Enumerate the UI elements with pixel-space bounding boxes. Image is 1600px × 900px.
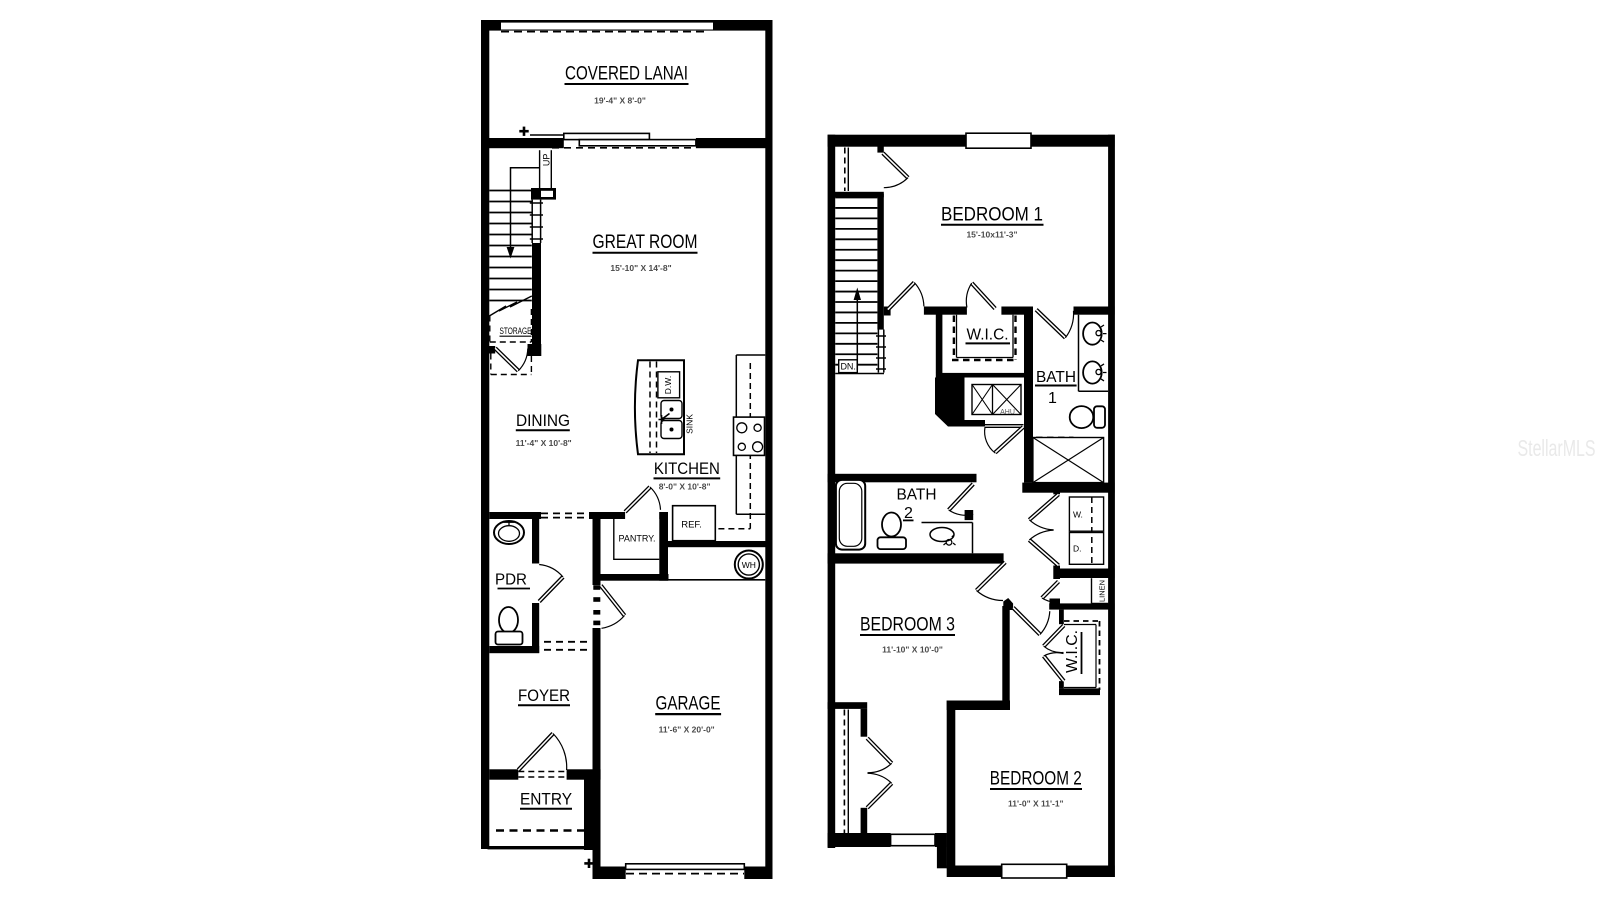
svg-text:SINK: SINK — [685, 414, 695, 434]
svg-text:11'-6" X 20'-0": 11'-6" X 20'-0" — [659, 725, 715, 735]
svg-text:15'-10x11'-3": 15'-10x11'-3" — [966, 230, 1017, 240]
svg-text:StellarMLS: StellarMLS — [1518, 435, 1596, 461]
svg-text:PANTRY.: PANTRY. — [618, 534, 655, 544]
svg-text:8'-0" X 10'-8": 8'-0" X 10'-8" — [659, 482, 711, 492]
svg-text:BEDROOM 2: BEDROOM 2 — [990, 769, 1082, 790]
svg-text:BEDROOM 3: BEDROOM 3 — [860, 615, 955, 636]
svg-text:W.I.C.: W.I.C. — [967, 327, 1009, 344]
svg-text:COVERED LANAI: COVERED LANAI — [565, 64, 688, 85]
svg-text:DINING: DINING — [516, 412, 570, 430]
svg-text:LINEN: LINEN — [1098, 580, 1107, 602]
svg-text:FOYER: FOYER — [518, 687, 570, 705]
svg-text:W.I.C.: W.I.C. — [1064, 630, 1081, 673]
svg-text:BEDROOM 1: BEDROOM 1 — [941, 204, 1043, 225]
svg-text:PDR: PDR — [495, 572, 527, 589]
svg-text:STORAGE: STORAGE — [500, 326, 532, 336]
svg-text:WH: WH — [742, 560, 756, 570]
svg-text:REF.: REF. — [681, 520, 702, 531]
svg-text:GREAT ROOM: GREAT ROOM — [593, 232, 698, 253]
svg-text:15'-10" X 14'-8": 15'-10" X 14'-8" — [610, 263, 671, 273]
svg-text:W.: W. — [1073, 510, 1083, 520]
svg-text:GARAGE: GARAGE — [656, 694, 721, 715]
svg-text:UP: UP — [542, 154, 552, 167]
svg-text:11'-0" X 11'-1": 11'-0" X 11'-1" — [1008, 799, 1064, 809]
svg-text:BATH: BATH — [1036, 369, 1076, 386]
svg-text:BATH: BATH — [897, 487, 937, 504]
svg-text:DN.: DN. — [840, 362, 856, 372]
svg-text:D.: D. — [1073, 544, 1082, 554]
svg-text:2: 2 — [904, 505, 913, 522]
svg-text:ENTRY: ENTRY — [520, 791, 572, 809]
svg-text:D.W.: D.W. — [663, 376, 673, 394]
svg-text:11'-4" X 10'-8": 11'-4" X 10'-8" — [516, 438, 572, 448]
svg-text:AHU: AHU — [1000, 409, 1015, 416]
svg-text:KITCHEN: KITCHEN — [654, 460, 720, 478]
svg-text:11'-10" X 10'-0": 11'-10" X 10'-0" — [882, 645, 943, 655]
svg-text:1: 1 — [1048, 390, 1057, 407]
svg-text:19'-4" X 8'-0": 19'-4" X 8'-0" — [594, 96, 646, 106]
